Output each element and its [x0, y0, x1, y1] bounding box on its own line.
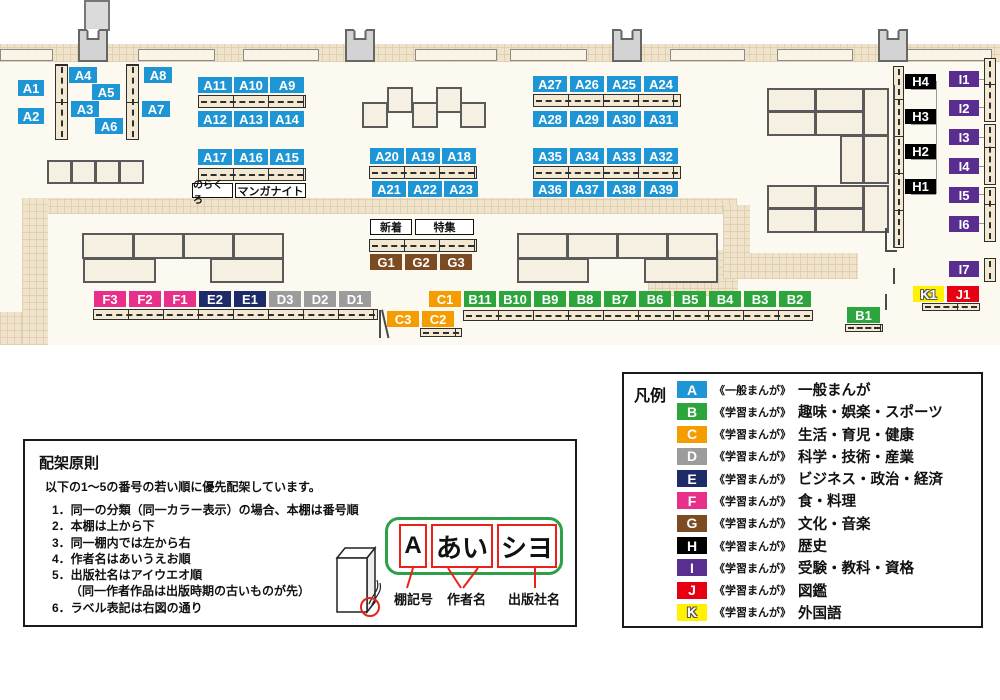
- display-table: [460, 102, 486, 128]
- shelf-label: B1: [847, 307, 880, 323]
- display-table: [362, 102, 388, 128]
- shelf-strip: [922, 303, 980, 311]
- shelf-block: [815, 185, 864, 209]
- shelf-strip: [55, 64, 68, 140]
- display-table: [436, 87, 462, 113]
- shelf-label-row: A21A22A23: [372, 181, 478, 197]
- shelf-label: A34: [570, 148, 604, 164]
- pillar: [878, 29, 908, 62]
- book-illustration: [325, 540, 575, 625]
- legend-category-label: 受験・教科・資格: [798, 557, 914, 578]
- principles-intro: 以下の1～5の番号の若い順に優先配架しています。: [45, 478, 321, 495]
- column-stub: [84, 0, 110, 31]
- shelf-label-row: A12A13A14: [198, 111, 304, 127]
- shelf-label: I7: [949, 261, 979, 277]
- shelf-block: [567, 233, 618, 259]
- wall-panel: [138, 49, 215, 61]
- shelf-label: A21: [372, 181, 406, 197]
- wall-panel: [670, 49, 745, 61]
- shelf-label: D2: [304, 291, 336, 307]
- shelf-label: A25: [607, 76, 641, 92]
- lead-line: [936, 81, 937, 194]
- corner-sign: マンガナイト: [235, 183, 306, 198]
- shelf-label: B7: [604, 291, 636, 307]
- shelf-strip: [984, 258, 996, 282]
- shelf-block: [863, 185, 889, 233]
- shelf-strip: [198, 95, 306, 108]
- shelf-block: [517, 233, 568, 259]
- legend-color-chip: H: [677, 537, 707, 554]
- shelf-label: A27: [533, 76, 567, 92]
- shelf-block: [71, 160, 96, 184]
- shelf-block: [617, 233, 668, 259]
- legend-category-label: 生活・育児・健康: [798, 424, 914, 445]
- shelf-block: [47, 160, 72, 184]
- shelf-block: [767, 208, 816, 233]
- shelf-label: I5: [949, 187, 979, 203]
- shelf-label: C3: [387, 311, 419, 327]
- shelf-label: A33: [607, 148, 641, 164]
- shelf-label: I3: [949, 129, 979, 145]
- shelf-label: G1: [370, 254, 402, 270]
- legend-color-chip: C: [677, 426, 707, 443]
- display-table: [387, 87, 413, 113]
- shelf-label: A18: [442, 148, 476, 164]
- wall-line: [893, 85, 895, 248]
- legend-category-label: 文化・音楽: [798, 513, 871, 534]
- shelf-label: A31: [644, 111, 678, 127]
- library-floor-map: A1 A2 A4 A5 A3 A6 A8 A7 B1 I7 K1 J1 A11A…: [0, 0, 1000, 700]
- shelf-strip: [533, 166, 681, 179]
- walkway-left: [22, 198, 48, 345]
- legend-color-chip: K: [677, 604, 707, 621]
- caption-author: 作者名: [447, 589, 486, 608]
- shelf-strip: [845, 324, 883, 332]
- shelf-label: A17: [198, 149, 232, 165]
- shelf-label: A30: [607, 111, 641, 127]
- shelf-label: A8: [144, 67, 172, 83]
- principles-rules: 1．同一の分類（同一カラー表示）の場合、本棚は番号順2．本棚は上から下3．同一棚…: [52, 502, 359, 616]
- shelf-label: A19: [406, 148, 440, 164]
- shelf-label: I1: [949, 71, 979, 87]
- legend-row: G 《学習まんが》 文化・音楽: [677, 515, 943, 532]
- shelf-block: [815, 88, 864, 112]
- shelf-label: A4: [69, 67, 97, 83]
- legend-series-label: 《学習まんが》: [714, 426, 791, 442]
- shelf-label: B3: [744, 291, 776, 307]
- principles-title: 配架原則: [39, 452, 99, 473]
- shelf-label: A10: [234, 77, 268, 93]
- shelf-label: H1: [905, 179, 936, 194]
- shelf-label-row: A20A19A18: [370, 148, 476, 164]
- shelf-label: B4: [709, 291, 741, 307]
- shelf-label-row: C3C2: [387, 311, 454, 327]
- shelf-label-row: G1G2G3: [370, 254, 472, 270]
- legend-row: K 《学習まんが》 外国語: [677, 604, 943, 621]
- shelf-label: I4: [949, 158, 979, 174]
- shelf-label: A38: [607, 181, 641, 197]
- pointer-line: [407, 568, 413, 588]
- shelf-label: A26: [570, 76, 604, 92]
- shelf-label-column: H4H3H2H1: [905, 74, 936, 194]
- shelf-strip: [93, 309, 378, 320]
- shelf-label-row: A11A10A9: [198, 77, 304, 93]
- legend-category-label: 趣味・娯楽・スポーツ: [798, 401, 943, 422]
- shelf-block: [233, 233, 284, 259]
- shelf-label: G3: [440, 254, 472, 270]
- shelf-label: A15: [270, 149, 304, 165]
- shelf-label: A20: [370, 148, 404, 164]
- legend-category-label: 図鑑: [798, 580, 827, 601]
- wall-opening-mark: [885, 250, 897, 252]
- legend-color-chip: G: [677, 515, 707, 532]
- shelf-label: A28: [533, 111, 567, 127]
- shelf-block: [95, 160, 120, 184]
- legend-color-chip: E: [677, 470, 707, 487]
- shelf-block: [133, 233, 184, 259]
- legend-category-label: 科学・技術・産業: [798, 446, 914, 467]
- pointer-line: [463, 568, 478, 588]
- legend-color-chip: A: [677, 381, 707, 398]
- shelf-block: [767, 88, 816, 112]
- legend-row: D 《学習まんが》 科学・技術・産業: [677, 448, 943, 465]
- legend-row: A 《一般まんが》 一般まんが: [677, 381, 943, 398]
- walkway-mid-vert: [723, 205, 750, 253]
- caption-shelf-code: 棚記号: [394, 589, 433, 608]
- legend-row: E 《学習まんが》 ビジネス・政治・経済: [677, 470, 943, 487]
- legend-row: H 《学習まんが》 歴史: [677, 537, 943, 554]
- pointer-line: [448, 568, 461, 588]
- shelf-label-column: I1I2I3I4I5I6: [949, 71, 979, 232]
- corner-sign: のらくろ: [192, 183, 233, 198]
- shelf-label: H4: [905, 74, 936, 89]
- shelf-label: I6: [949, 216, 979, 232]
- walkway-mid-horiz: [723, 253, 858, 279]
- shelf-label: F2: [129, 291, 161, 307]
- wall-panel: [243, 49, 319, 61]
- shelf-label: A13: [234, 111, 268, 127]
- shelf-strip: [533, 94, 681, 107]
- shelf-strip: [984, 58, 996, 122]
- shelf-strip: [984, 187, 996, 242]
- legend-row: J 《学習まんが》 図鑑: [677, 582, 943, 599]
- legend-color-chip: D: [677, 448, 707, 465]
- shelf-label: B10: [499, 291, 531, 307]
- legend-category-label: 外国語: [798, 602, 842, 623]
- shelf-label: B8: [569, 291, 601, 307]
- legend-series-label: 《学習まんが》: [714, 493, 791, 509]
- pillar: [78, 29, 108, 62]
- legend-category-label: ビジネス・政治・経済: [798, 468, 943, 489]
- principle-rule: 3．同一棚内では左から右: [52, 535, 359, 551]
- legend-series-label: 《学習まんが》: [714, 538, 791, 554]
- shelf-label: E1: [234, 291, 266, 307]
- shelf-label: J1: [947, 286, 979, 302]
- shelf-block: [83, 258, 156, 283]
- shelf-block: [667, 233, 718, 259]
- legend-series-label: 《学習まんが》: [714, 404, 791, 420]
- new-arrivals-sign: 新着: [370, 219, 412, 235]
- shelf-strip: [420, 328, 462, 337]
- shelf-label: A11: [198, 77, 232, 93]
- shelf-label: A29: [570, 111, 604, 127]
- principle-rule: （同一作者作品は出版時期の古いものが先）: [52, 583, 359, 599]
- legend-category-label: 歴史: [798, 535, 827, 556]
- shelf-strip: [369, 239, 477, 252]
- shelf-block: [863, 88, 889, 136]
- shelf-block: [183, 233, 234, 259]
- pillar: [612, 29, 642, 62]
- legend-row: F 《学習まんが》 食・料理: [677, 492, 943, 509]
- shelf-block: [767, 111, 816, 136]
- legend-color-chip: I: [677, 559, 707, 576]
- legend-color-chip: F: [677, 492, 707, 509]
- shelf-label: A22: [408, 181, 442, 197]
- shelf-block: [644, 258, 718, 283]
- legend-row: I 《学習まんが》 受験・教科・資格: [677, 559, 943, 576]
- shelf-label: A1: [18, 80, 44, 96]
- legend-row: B 《学習まんが》 趣味・娯楽・スポーツ: [677, 403, 943, 420]
- shelf-label-row: A17A16A15: [198, 149, 304, 165]
- shelf-label: A24: [644, 76, 678, 92]
- shelf-block: [815, 208, 864, 233]
- shelf-label: A5: [92, 84, 120, 100]
- shelf-label: A9: [270, 77, 304, 93]
- wall-panel: [0, 49, 53, 61]
- shelf-label: B9: [534, 291, 566, 307]
- principle-rule: 5．出版社名はアイウエオ順: [52, 567, 359, 583]
- shelf-label: A39: [644, 181, 678, 197]
- shelf-label: A37: [570, 181, 604, 197]
- lead-line: [911, 194, 936, 195]
- caption-publisher: 出版社名: [508, 589, 560, 608]
- shelf-label: A35: [533, 148, 567, 164]
- principle-rule: 4．作者名はあいうえお順: [52, 551, 359, 567]
- walkway-band: [22, 198, 737, 214]
- shelf-label: I2: [949, 100, 979, 116]
- shelf-block: [210, 258, 284, 283]
- shelf-strip: [984, 124, 996, 185]
- shelf-strip: [126, 64, 139, 140]
- shelf-label: F1: [164, 291, 196, 307]
- shelf-label: B6: [639, 291, 671, 307]
- pillar: [345, 29, 375, 62]
- legend-heading: 凡例: [634, 382, 666, 406]
- shelf-label-row: C1B11B10B9B8B7B6B5B4B3B2: [429, 291, 811, 307]
- shelf-label: A16: [234, 149, 268, 165]
- shelf-label: A12: [198, 111, 232, 127]
- shelf-label: C2: [422, 311, 454, 327]
- shelf-label: H2: [905, 144, 936, 159]
- shelf-label: B5: [674, 291, 706, 307]
- shelf-label: D3: [269, 291, 301, 307]
- shelf-block: [82, 233, 134, 259]
- shelf-label: D1: [339, 291, 371, 307]
- shelf-label-row: A28A29A30A31: [533, 111, 678, 127]
- wall-panel: [903, 49, 992, 61]
- shelf-label: A32: [644, 148, 678, 164]
- shelf-label: G2: [405, 254, 437, 270]
- display-table: [412, 102, 438, 128]
- walkway-corner: [0, 312, 22, 345]
- shelf-label: K1: [913, 286, 944, 302]
- principle-rule: 2．本棚は上から下: [52, 518, 359, 534]
- legend-series-label: 《学習まんが》: [714, 604, 791, 620]
- legend-series-label: 《学習まんが》: [714, 471, 791, 487]
- wall-opening-mark: [885, 228, 887, 252]
- legend-series-label: 《一般まんが》: [714, 382, 791, 398]
- legend-color-chip: J: [677, 582, 707, 599]
- shelf-block: [767, 185, 816, 209]
- legend-category-label: 食・料理: [798, 490, 856, 511]
- wall-opening-mark: [885, 294, 887, 310]
- shelf-block: [863, 135, 889, 184]
- legend-row: C 《学習まんが》 生活・育児・健康: [677, 426, 943, 443]
- shelf-label: B2: [779, 291, 811, 307]
- shelf-label-row: A27A26A25A24: [533, 76, 678, 92]
- door-frame: [379, 310, 381, 338]
- principle-rule: 6．ラベル表記は右図の通り: [52, 600, 359, 616]
- shelf-label: H3: [905, 109, 936, 124]
- shelf-label: A6: [95, 118, 123, 134]
- legend-box: 凡例 A 《一般まんが》 一般まんが B 《学習まんが》 趣味・娯楽・スポーツ …: [622, 372, 983, 628]
- wall-panel: [777, 49, 853, 61]
- legend-series-label: 《学習まんが》: [714, 560, 791, 576]
- shelf-label: A23: [444, 181, 478, 197]
- shelf-block: [815, 111, 864, 136]
- shelf-strip: [369, 166, 477, 179]
- shelf-label-row: F3F2F1E2E1D3D2D1: [94, 291, 371, 307]
- shelf-block: [840, 135, 864, 184]
- shelf-label: C1: [429, 291, 461, 307]
- shelf-label: B11: [464, 291, 496, 307]
- shelf-block: [517, 258, 589, 283]
- legend-series-label: 《学習まんが》: [714, 582, 791, 598]
- feature-sign: 特集: [415, 219, 474, 235]
- shelf-label: A3: [71, 101, 99, 117]
- shelf-label: E2: [199, 291, 231, 307]
- shelf-label-row: A35A34A33A32: [533, 148, 678, 164]
- shelf-label: A36: [533, 181, 567, 197]
- shelf-block: [119, 160, 144, 184]
- shelf-label: A14: [270, 111, 304, 127]
- principle-rule: 1．同一の分類（同一カラー表示）の場合、本棚は番号順: [52, 502, 359, 518]
- legend-rows: A 《一般まんが》 一般まんが B 《学習まんが》 趣味・娯楽・スポーツ C 《…: [677, 381, 943, 626]
- legend-color-chip: B: [677, 403, 707, 420]
- shelf-label: A7: [142, 101, 170, 117]
- shelf-label: A2: [18, 108, 44, 124]
- legend-category-label: 一般まんが: [798, 379, 871, 400]
- shelf-label-row: A36A37A38A39: [533, 181, 678, 197]
- shelf-strip: [463, 310, 813, 321]
- shelf-label: F3: [94, 291, 126, 307]
- legend-series-label: 《学習まんが》: [714, 515, 791, 531]
- legend-series-label: 《学習まんが》: [714, 448, 791, 464]
- wall-opening-mark: [893, 268, 895, 284]
- wall-panel: [510, 49, 587, 61]
- wall-panel: [415, 49, 497, 61]
